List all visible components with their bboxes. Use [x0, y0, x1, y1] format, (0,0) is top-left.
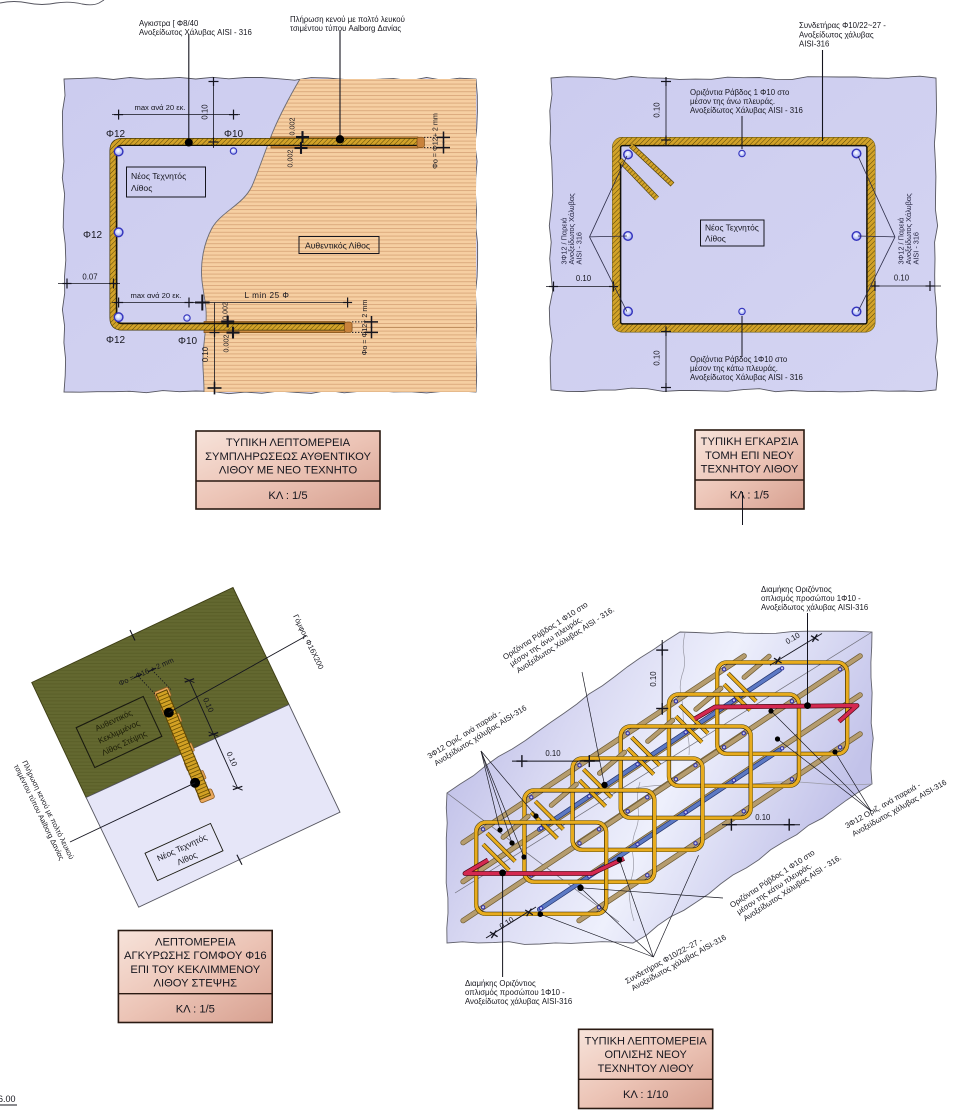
svg-text:Συνδετήρας Φ10/22~27 -: Συνδετήρας Φ10/22~27 -: [799, 21, 886, 30]
svg-text:Ανοξείδωτος χάλυβας AISI-316: Ανοξείδωτος χάλυβας AISI-316: [761, 603, 868, 612]
svg-text:3Φ12 Οριζ. ανά παρειά -: 3Φ12 Οριζ. ανά παρειά -: [426, 708, 503, 761]
svg-text:ΛΙΘΟΥ ΜΕ ΝΕΟ ΤΕΧΝΗΤΟ: ΛΙΘΟΥ ΜΕ ΝΕΟ ΤΕΧΝΗΤΟ: [219, 465, 358, 477]
svg-text:Νέος Τεχνητός: Νέος Τεχνητός: [705, 223, 759, 233]
svg-text:ΚΛ : 1/5: ΚΛ : 1/5: [730, 490, 769, 502]
svg-text:0.10: 0.10: [201, 104, 210, 120]
svg-text:Ανοξείδωτος χάλυβας: Ανοξείδωτος χάλυβας: [799, 30, 874, 39]
svg-text:ΤΕΧΝΗΤΟΥ ΛΙΘΟΥ: ΤΕΧΝΗΤΟΥ ΛΙΘΟΥ: [701, 464, 799, 476]
svg-text:0.002: 0.002: [221, 302, 230, 320]
svg-text:max ανά 20 εκ.: max ανά 20 εκ.: [131, 291, 182, 300]
svg-text:Φ12: Φ12: [83, 230, 103, 241]
svg-text:μέσον της κάτω πλευράς.: μέσον της κάτω πλευράς.: [690, 364, 778, 373]
svg-text:Φ12: Φ12: [106, 335, 126, 346]
svg-text:0.10: 0.10: [653, 102, 662, 118]
svg-text:0.002: 0.002: [222, 335, 231, 353]
svg-text:ΤΥΠΙΚΗ ΕΓΚΑΡΣΙΑ: ΤΥΠΙΚΗ ΕΓΚΑΡΣΙΑ: [701, 436, 799, 448]
svg-text:Πλήρωση κενού με πολτό λευκού: Πλήρωση κενού με πολτό λευκού: [20, 759, 76, 861]
svg-text:0.10: 0.10: [755, 813, 771, 822]
svg-text:ΚΛ : 1/5: ΚΛ : 1/5: [176, 1003, 215, 1015]
svg-text:Ανοξείδωτος χάλυβας AISI-316: Ανοξείδωτος χάλυβας AISI-316: [465, 997, 572, 1006]
svg-text:Ανοξείδωτος Χάλυβας AISI - 316: Ανοξείδωτος Χάλυβας AISI - 316: [139, 28, 252, 37]
svg-text:0.002: 0.002: [287, 118, 296, 136]
svg-text:Λίθος: Λίθος: [705, 234, 726, 244]
svg-text:τσιμέντου τύπου Aalborg Δανίας: τσιμέντου τύπου Aalborg Δανίας: [12, 763, 66, 862]
svg-text:0.10: 0.10: [201, 346, 210, 362]
svg-text:Νέος Τεχνητός: Νέος Τεχνητός: [131, 171, 186, 181]
svg-text:6.00: 6.00: [0, 1094, 16, 1104]
svg-text:τσιμέντου τύπου Aalborg Δανίας: τσιμέντου τύπου Aalborg Δανίας: [290, 24, 401, 33]
svg-text:ΟΠΛΙΣΗΣ ΝΕΟΥ: ΟΠΛΙΣΗΣ ΝΕΟΥ: [604, 1049, 687, 1061]
svg-text:μέσον της κάτω πλευράς.: μέσον της κάτω πλευράς.: [735, 861, 814, 916]
svg-text:ΛΕΠΤΟΜΕΡΕΙΑ: ΛΕΠΤΟΜΕΡΕΙΑ: [155, 936, 236, 948]
svg-text:0.002: 0.002: [285, 150, 294, 168]
svg-text:Φ10: Φ10: [224, 129, 244, 140]
svg-text:μέσον της άνω πλευράς.: μέσον της άνω πλευράς.: [690, 97, 775, 106]
svg-text:οπλισμός προσώπου 1Φ10 -: οπλισμός προσώπου 1Φ10 -: [761, 594, 861, 603]
svg-text:AISI - 316: AISI - 316: [575, 232, 584, 264]
svg-text:Συνδετήρας Φ10/22~27 -: Συνδετήρας Φ10/22~27 -: [624, 936, 705, 986]
svg-text:Οριζόντια Ράβδος 1 Φ10 στο: Οριζόντια Ράβδος 1 Φ10 στο: [690, 88, 790, 97]
svg-text:ΣΥΜΠΛΗΡΩΣΕΩΣ ΑΥΘΕΝΤΙΚΟΥ: ΣΥΜΠΛΗΡΩΣΕΩΣ ΑΥΘΕΝΤΙΚΟΥ: [205, 451, 371, 463]
svg-text:0.10: 0.10: [649, 671, 658, 687]
svg-text:max ανά 20 εκ.: max ανά 20 εκ.: [135, 103, 186, 112]
svg-text:Ανοξείδωτος χάλυβας AISI-316: Ανοξείδωτος χάλυβας AISI-316: [630, 933, 728, 993]
svg-text:0.07: 0.07: [82, 273, 97, 282]
svg-text:AISI - 316: AISI - 316: [912, 232, 921, 264]
svg-text:Πλήρωση κενού με πολτό λευκού: Πλήρωση κενού με πολτό λευκού: [290, 15, 405, 24]
svg-text:ΚΛ : 1/10: ΚΛ : 1/10: [623, 1089, 668, 1101]
svg-text:ΤΥΠΙΚΗ ΛΕΠΤΟΜΕΡΕΙΑ: ΤΥΠΙΚΗ ΛΕΠΤΟΜΕΡΕΙΑ: [585, 1035, 708, 1047]
svg-text:ΤΥΠΙΚΗ ΛΕΠΤΟΜΕΡΕΙΑ: ΤΥΠΙΚΗ ΛΕΠΤΟΜΕΡΕΙΑ: [226, 437, 351, 449]
svg-text:Ανοξείδωτος Χάλυβας AISI - 316: Ανοξείδωτος Χάλυβας AISI - 316: [690, 373, 803, 382]
svg-text:0.10: 0.10: [653, 350, 662, 366]
svg-text:Φ10: Φ10: [178, 336, 198, 347]
svg-text:Διαμήκης Οριζόντιος: Διαμήκης Οριζόντιος: [465, 979, 536, 988]
svg-text:ΚΛ : 1/5: ΚΛ : 1/5: [268, 490, 307, 502]
svg-text:Αυθεντικός Λίθος: Αυθεντικός Λίθος: [305, 241, 370, 251]
svg-text:Φ12: Φ12: [106, 129, 126, 140]
svg-text:Φο = Φ12+ 2 mm: Φο = Φ12+ 2 mm: [431, 113, 440, 169]
svg-text:οπλισμός προσώπου 1Φ10 -: οπλισμός προσώπου 1Φ10 -: [465, 988, 565, 997]
svg-text:AISI-316: AISI-316: [799, 40, 829, 49]
svg-text:Λίθος: Λίθος: [131, 183, 152, 193]
svg-text:Διαμήκης Οριζόντιος: Διαμήκης Οριζόντιος: [761, 585, 832, 594]
svg-text:Οριζόντια Ράβδος 1Φ10 στο: Οριζόντια Ράβδος 1Φ10 στο: [690, 355, 788, 364]
svg-text:0.10: 0.10: [894, 274, 910, 283]
svg-text:ΛΙΘΟΥ ΣΤΕΨΗΣ: ΛΙΘΟΥ ΣΤΕΨΗΣ: [154, 978, 238, 990]
svg-text:Αγκιστρα [ Φ8/40: Αγκιστρα [ Φ8/40: [139, 19, 199, 28]
svg-text:L min 25 Φ: L min 25 Φ: [245, 291, 290, 300]
svg-text:Ανοξείδωτος Χάλυβας AISI - 316: Ανοξείδωτος Χάλυβας AISI - 316: [690, 106, 803, 115]
svg-text:Φο = Φ12+ 2 mm: Φο = Φ12+ 2 mm: [360, 300, 369, 356]
svg-text:0.10: 0.10: [545, 749, 561, 758]
svg-text:0.10: 0.10: [576, 274, 592, 283]
svg-text:ΤΟΜΗ ΕΠΙ ΝΕΟΥ: ΤΟΜΗ ΕΠΙ ΝΕΟΥ: [705, 450, 794, 462]
svg-text:ΕΠΙ ΤΟΥ ΚΕΚΛΙΜΜΕΝΟΥ: ΕΠΙ ΤΟΥ ΚΕΚΛΙΜΜΕΝΟΥ: [130, 964, 260, 976]
svg-text:ΑΓΚΥΡΩΣΗΣ ΓΟΜΦΟΥ Φ16: ΑΓΚΥΡΩΣΗΣ ΓΟΜΦΟΥ Φ16: [124, 950, 267, 962]
svg-text:ΤΕΧΝΗΤΟΥ ΛΙΘΟΥ: ΤΕΧΝΗΤΟΥ ΛΙΘΟΥ: [598, 1063, 695, 1075]
